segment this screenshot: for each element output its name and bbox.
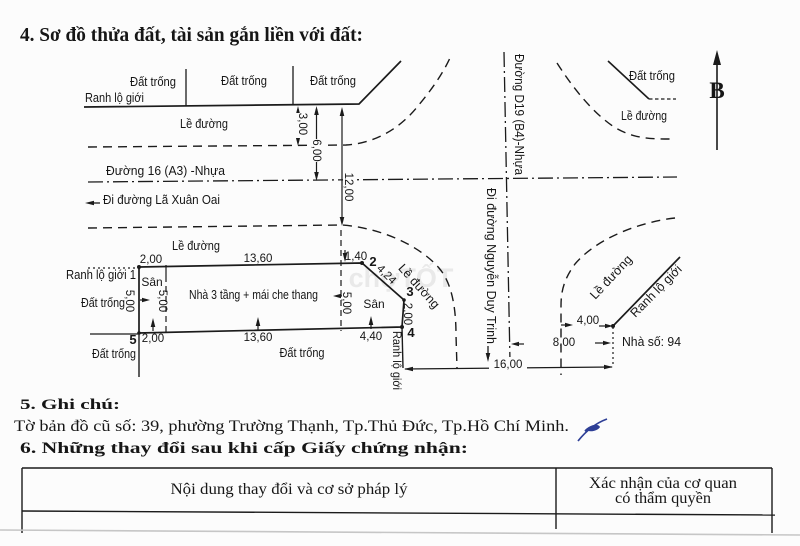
svg-text:4: 4 (407, 325, 415, 340)
svg-text:16,00: 16,00 (494, 359, 523, 371)
svg-text:Đi đường Lã Xuân Oai: Đi đường Lã Xuân Oai (103, 192, 220, 207)
svg-text:Lề đường: Lề đường (621, 109, 667, 123)
svg-text:1,40: 1,40 (345, 251, 367, 263)
svg-text:B: B (709, 78, 724, 103)
svg-text:Tờ bản đồ cũ số: 39, phường Tr: Tờ bản đồ cũ số: 39, phường Trường Thạnh… (14, 418, 569, 435)
svg-text:13,60: 13,60 (244, 332, 273, 344)
svg-text:Đất trống: Đất trống (81, 296, 125, 310)
svg-text:Đi đường Nguyễn Duy Trinh: Đi đường Nguyễn Duy Trinh (484, 188, 499, 344)
svg-text:Nhà số: 94: Nhà số: 94 (622, 334, 681, 349)
svg-text:Đất trống: Đất trống (221, 74, 267, 88)
svg-text:5: 5 (129, 332, 136, 347)
svg-text:5,00: 5,00 (340, 292, 352, 314)
svg-text:6,00: 6,00 (310, 139, 322, 161)
svg-text:Nhà 3 tầng + mái che thang: Nhà 3 tầng + mái che thang (189, 288, 318, 302)
svg-text:Ranh lộ giới: Ranh lộ giới (85, 91, 144, 105)
svg-text:Đất trống: Đất trống (629, 69, 675, 83)
svg-text:Lề đường: Lề đường (587, 252, 635, 302)
svg-text:4,40: 4,40 (360, 331, 382, 343)
svg-text:Lề đường: Lề đường (172, 239, 220, 253)
svg-text:Đường D19 (B4)-Nhựa: Đường D19 (B4)-Nhựa (512, 54, 526, 175)
svg-text:Đất trống: Đất trống (280, 346, 325, 360)
svg-text:8,00: 8,00 (553, 337, 575, 349)
svg-text:Sân: Sân (141, 275, 162, 289)
svg-text:Ranh lộ giới 1: Ranh lộ giới 1 (66, 268, 136, 282)
svg-text:13,60: 13,60 (244, 253, 273, 265)
svg-text:Đất trống: Đất trống (92, 347, 136, 361)
svg-text:3,00: 3,00 (296, 113, 308, 135)
svg-text:4,00: 4,00 (577, 315, 599, 327)
svg-text:6. Những thay đổi sau khi cấp: 6. Những thay đổi sau khi cấp Giấy chứng… (20, 440, 468, 457)
svg-text:5,00: 5,00 (156, 290, 168, 312)
svg-text:Đường 16 (A3) -Nhựa: Đường 16 (A3) -Nhựa (106, 163, 226, 178)
svg-text:Ranh lộ giới: Ranh lộ giới (628, 262, 685, 320)
svg-text:Đất trống: Đất trống (130, 75, 176, 89)
svg-text:2: 2 (369, 254, 376, 269)
svg-text:Sân: Sân (363, 297, 384, 311)
svg-text:Nội dung thay đổi và cơ sở phá: Nội dung thay đổi và cơ sở pháp lý (171, 481, 408, 498)
svg-text:5. Ghi chú:: 5. Ghi chú: (20, 397, 120, 413)
svg-text:2,00: 2,00 (142, 333, 164, 345)
svg-text:có thẩm quyền: có thẩm quyền (615, 490, 711, 507)
svg-text:2,00: 2,00 (140, 254, 162, 266)
svg-text:4. Sơ đồ thửa đất, tài sản gắn: 4. Sơ đồ thửa đất, tài sản gắn liền với … (20, 25, 363, 46)
svg-text:12,00: 12,00 (342, 173, 354, 202)
svg-text:Lề đường: Lề đường (180, 117, 228, 131)
svg-text:Đất trống: Đất trống (310, 74, 356, 88)
svg-text:2,00: 2,00 (401, 303, 413, 325)
